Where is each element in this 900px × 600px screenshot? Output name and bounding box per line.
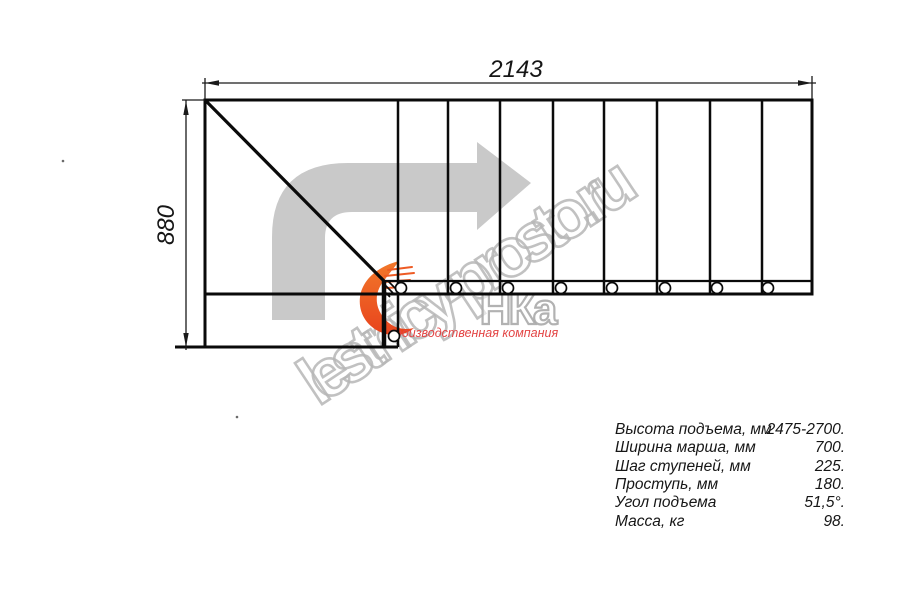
dimension-width: 2143	[202, 56, 816, 99]
dim-arrow-right-icon	[798, 80, 812, 85]
width-dimension-label: 2143	[488, 56, 543, 83]
spec-value: 2475-2700.	[766, 421, 845, 438]
spec-value: 98.	[823, 513, 845, 530]
spec-label: Ширина марша, мм	[615, 439, 756, 456]
dim-arrow-left-icon	[205, 80, 219, 85]
height-dimension-label: 880	[153, 204, 180, 245]
spec-label: Шаг ступеней, мм	[615, 458, 751, 475]
image-specks	[62, 160, 239, 419]
spec-label: Угол подъема	[614, 494, 717, 511]
stair-plan-drawing: lestnicy-prosto.ru НКа производственная …	[0, 0, 900, 600]
spec-label: Высота подъема, мм	[615, 421, 772, 438]
logo-tagline: производственная компания	[388, 326, 558, 340]
spec-value: 700.	[815, 439, 845, 456]
spec-label: Проступь, мм	[615, 476, 718, 493]
dim-arrow-down-icon	[183, 333, 188, 347]
dim-arrow-up-icon	[183, 101, 188, 115]
specs-table: Высота подъема, мм 2475-2700. Ширина мар…	[614, 421, 845, 530]
dimension-height: 880	[153, 100, 205, 350]
spec-value: 51,5°.	[804, 494, 845, 511]
stair-drawing-page: lestnicy-prosto.ru НКа производственная …	[0, 0, 900, 600]
spec-value: 180.	[815, 476, 845, 493]
spec-value: 225.	[814, 458, 845, 475]
spec-label: Масса, кг	[615, 513, 685, 530]
